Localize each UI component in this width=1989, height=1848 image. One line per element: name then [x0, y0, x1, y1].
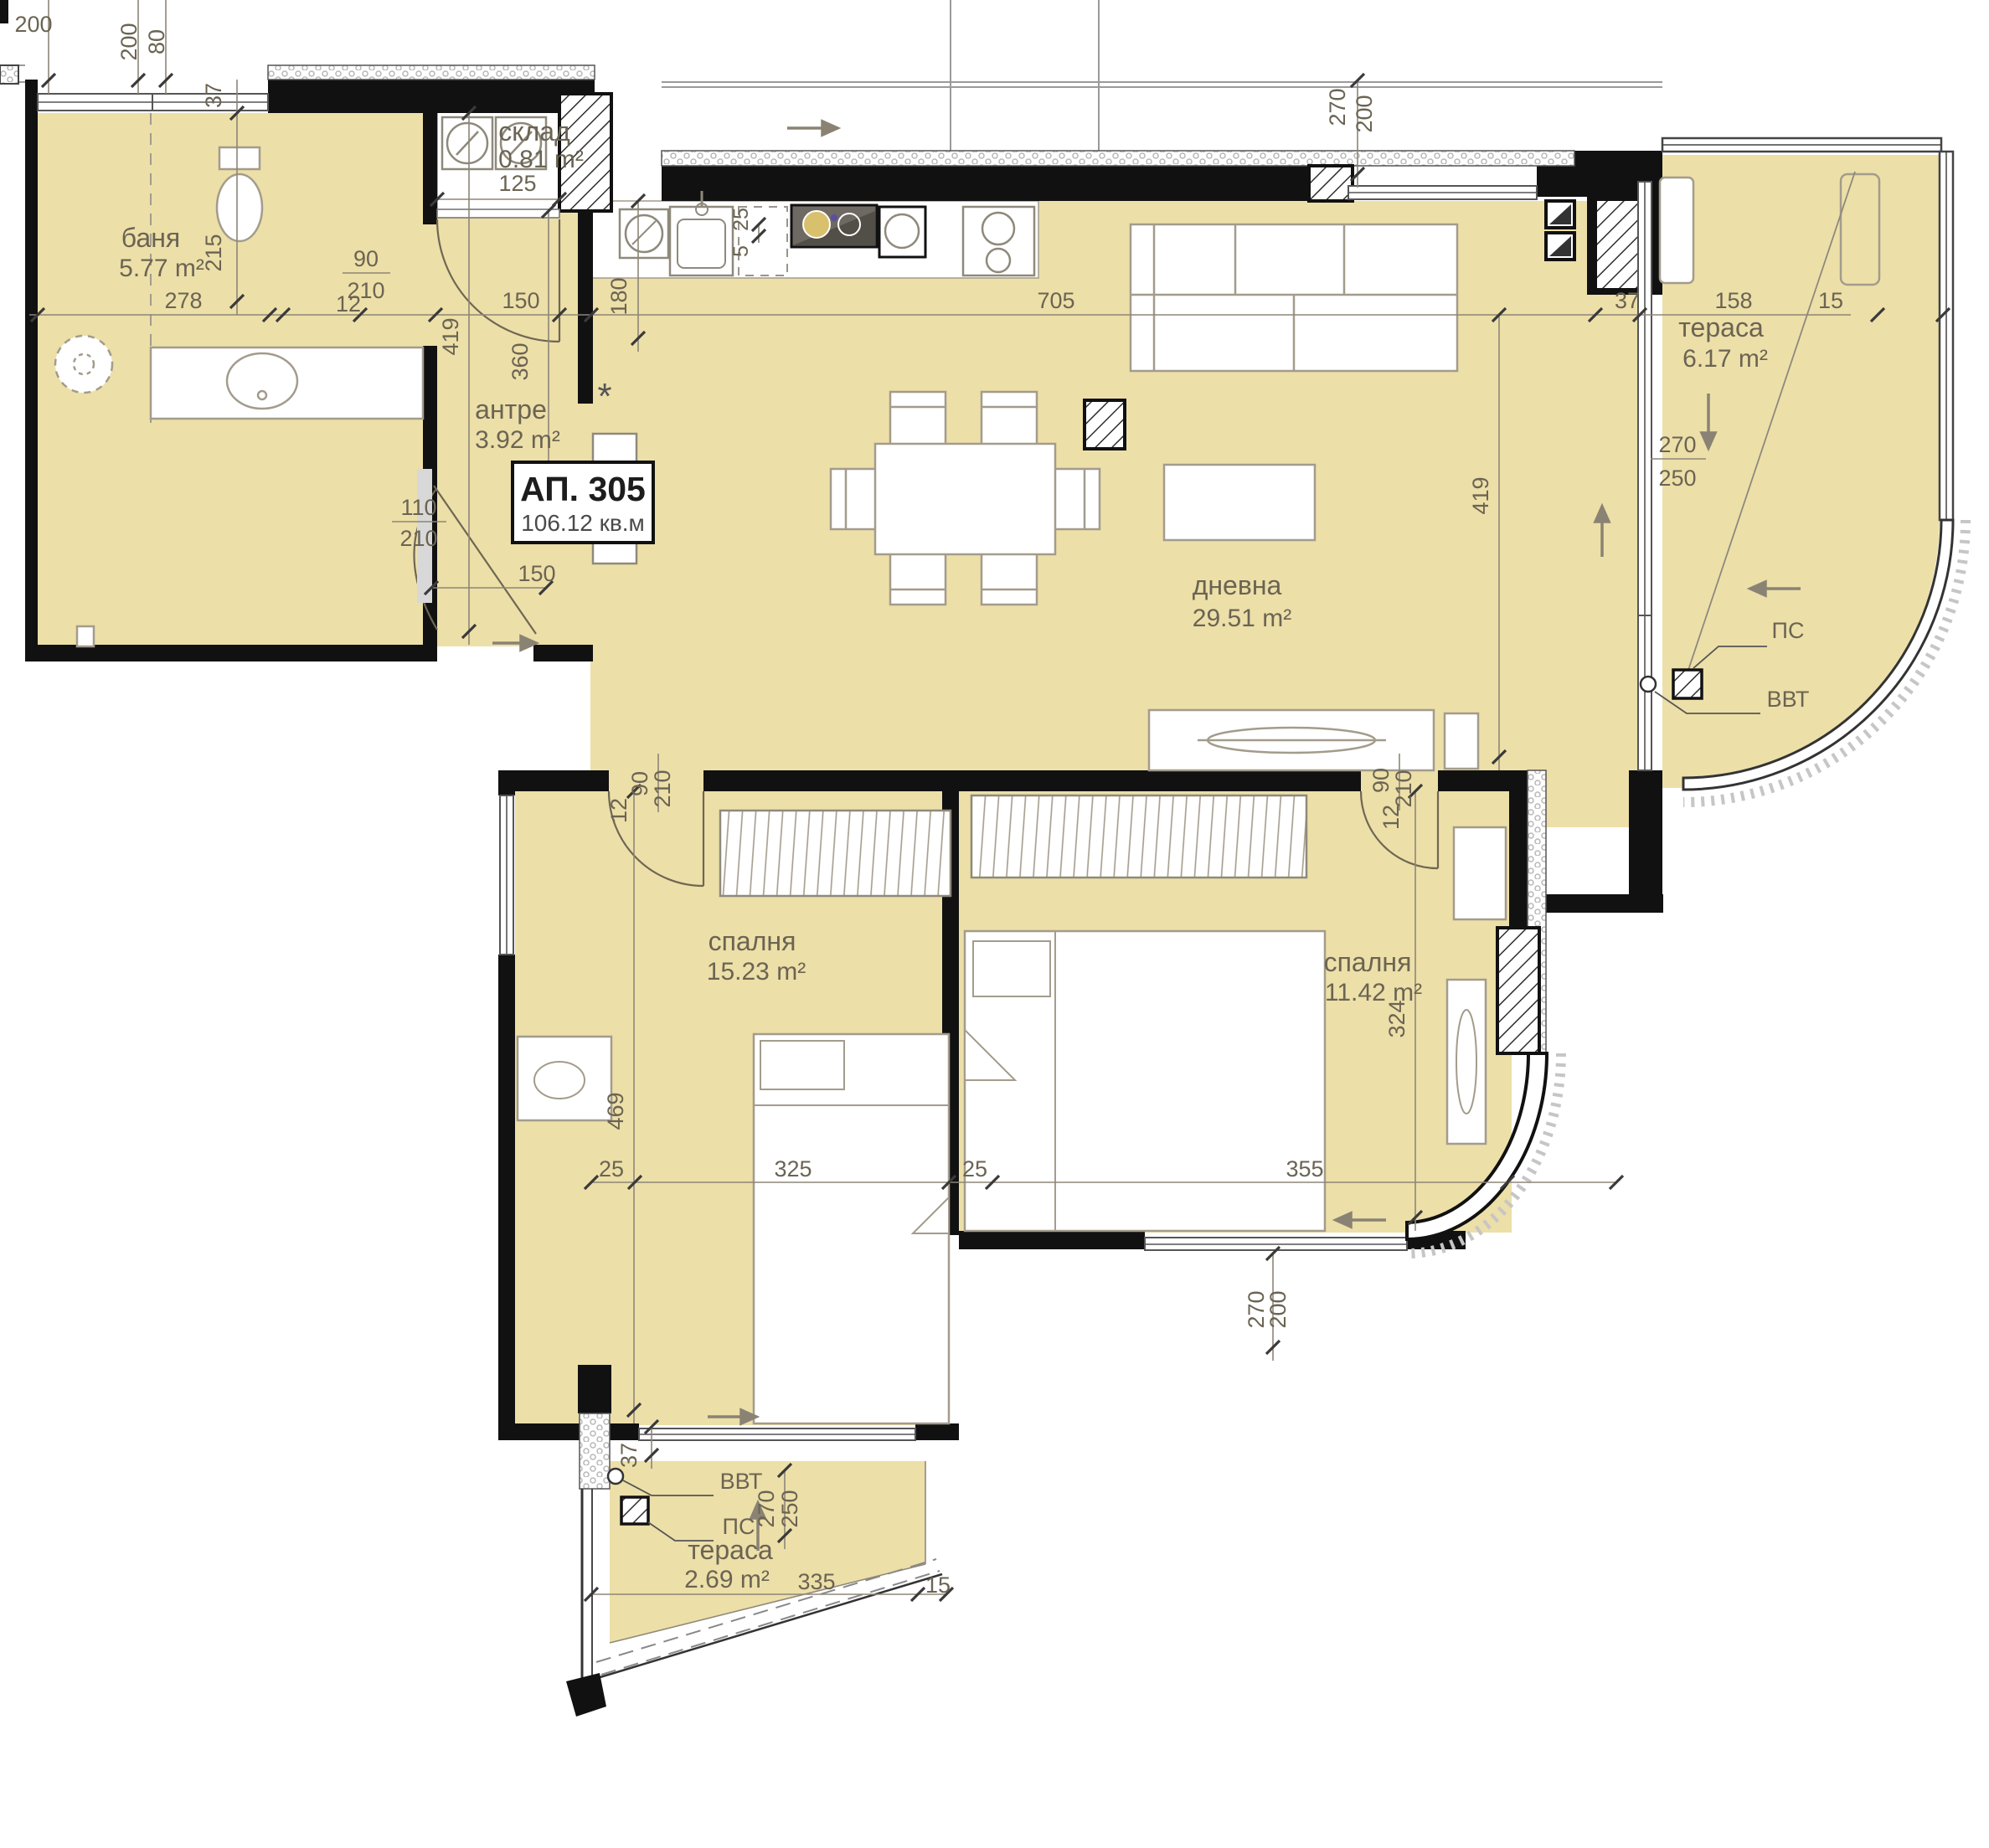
dim-entry-210: 210: [399, 526, 437, 551]
wall-living-se: [1629, 770, 1662, 913]
area-terrace-right: 6.17 m²: [1682, 345, 1768, 373]
wall-bd1-left-top: [498, 770, 515, 795]
ps-box-bottom: [621, 1497, 648, 1524]
dim-top-200b: 200: [1352, 95, 1377, 132]
dim-terr-158: 158: [1714, 288, 1752, 313]
dim-entry-150: 150: [518, 561, 555, 586]
dim-bath-278: 278: [164, 288, 202, 313]
dim-bathdoor-12: 12: [336, 291, 361, 317]
dim-top-200: 200: [14, 12, 52, 37]
area-living: 29.51 m²: [1193, 605, 1291, 632]
vvt-label-bottom: ВВТ: [720, 1469, 763, 1494]
dim-storage-125: 125: [498, 171, 536, 196]
dim-bd2-90: 90: [1368, 768, 1394, 793]
dining-table: [875, 444, 1055, 554]
neighbor-insulation-corner: [0, 65, 18, 84]
toilet-bowl: [217, 174, 262, 241]
bath-drain: [77, 626, 94, 646]
dim-terr-15: 15: [1818, 288, 1843, 313]
dim-kitchen-5: 5: [729, 245, 753, 257]
area-hall: 3.92 m²: [475, 426, 560, 454]
window-bd1-bottom: [639, 1428, 915, 1440]
column-bd2-right: [1497, 928, 1539, 1053]
wall-bd1-bottom-b: [915, 1423, 959, 1440]
insulation-living-top: [662, 151, 1574, 166]
coffee-table: [1164, 465, 1315, 540]
label-storage: склад: [498, 116, 570, 147]
wall-bedrooms-top-c: [1438, 770, 1534, 791]
wall-bd1-bottom-a: [498, 1423, 639, 1440]
dim-botright-200: 200: [1265, 1290, 1291, 1328]
terrace-unit-right: [1841, 174, 1879, 285]
bd1-wardrobe: [720, 811, 951, 896]
dim-kitchen-180: 180: [606, 277, 631, 315]
apartment-area: 106.12 кв.м: [521, 510, 645, 536]
insulation-terrace-bottom: [580, 1413, 610, 1489]
wall-bd2-bottom-a: [959, 1231, 1145, 1249]
wall-entry-right: [533, 645, 593, 661]
dim-top-270: 270: [1325, 88, 1350, 126]
area-terrace-bottom: 2.69 m²: [684, 1566, 770, 1593]
dim-entry-110: 110: [400, 495, 436, 520]
wall-entry-left: [368, 645, 433, 661]
chair: [831, 469, 877, 529]
dim-bd1-12: 12: [606, 798, 631, 823]
bd2-wardrobe: [971, 795, 1306, 878]
window-living-topright: [1348, 186, 1537, 199]
dim-bd2-12: 12: [1378, 805, 1404, 830]
window-bd1-left: [500, 795, 513, 955]
wall-bedrooms-top-b: [703, 770, 1361, 791]
dim-bot-25-left: 25: [599, 1156, 624, 1181]
bd1-dresser: [518, 1037, 611, 1120]
floor-plan-page: АП. 305 106.12 кв.м баня 5.77 m² склад 0…: [0, 0, 1989, 1848]
bd2-vanity: [1447, 980, 1486, 1144]
living-side-unit: [1445, 713, 1478, 769]
label-living: дневна: [1193, 570, 1282, 600]
dim-bd1-210: 210: [650, 770, 675, 807]
vvt-point-right: [1641, 677, 1656, 692]
washbasin-drain: [258, 391, 266, 399]
dim-bd2-324: 324: [1384, 1000, 1409, 1037]
asterisk-mark: *: [597, 376, 611, 417]
dim-top-v80: 80: [144, 29, 169, 54]
wall-step-connector: [1539, 894, 1663, 913]
dim-kitchen-25: 25: [729, 208, 753, 231]
chair: [982, 392, 1037, 447]
window-bath-top: [38, 94, 268, 111]
apartment-label-box: АП. 305 106.12 кв.м: [513, 462, 653, 543]
apartment-number: АП. 305: [520, 470, 646, 508]
sofa: [1131, 224, 1457, 371]
dim-bathdoor-90: 90: [353, 246, 379, 271]
toilet-tank: [219, 147, 260, 169]
dim-bd1-90: 90: [627, 771, 652, 796]
label-bedroom-left: спалня: [709, 926, 796, 956]
label-terrace-bottom: тераса: [688, 1535, 773, 1565]
wall-living-top: [662, 166, 1348, 201]
column-living-topwall: [1309, 166, 1353, 201]
label-hall: антре: [475, 394, 547, 425]
wall-hall-stub: [578, 211, 593, 404]
label-terrace-right: тераса: [1678, 312, 1764, 342]
dim-hall-360: 360: [508, 342, 533, 380]
vvt-label-right: ВВТ: [1767, 687, 1810, 712]
floor-plan-drawing: АП. 305 106.12 кв.м баня 5.77 m² склад 0…: [0, 0, 1989, 1848]
ps-label-right: ПС: [1772, 618, 1805, 643]
label-bedroom-right: спалня: [1324, 947, 1412, 977]
wall-terrace-bottom-left: [578, 1365, 611, 1413]
ps-label-bottom: ПС: [723, 1514, 755, 1539]
window-bd2-bottom: [1145, 1238, 1407, 1250]
tv-console: [1149, 710, 1434, 770]
dim-bt-37: 37: [616, 1443, 642, 1468]
wall-bath-right-upper: [423, 113, 437, 224]
chair: [890, 553, 946, 605]
dim-living-419-right: 419: [1468, 476, 1493, 514]
terrace-unit-left: [1660, 178, 1693, 283]
dim-living-705: 705: [1037, 288, 1074, 313]
area-storage: 0.81 m²: [498, 146, 584, 173]
chair: [982, 553, 1037, 605]
neighbor-wall-stub: [0, 0, 8, 23]
dim-living-419-left: 419: [438, 317, 463, 355]
dim-bt-270: 270: [754, 1490, 779, 1527]
column-living-mid: [1085, 400, 1125, 449]
label-bathroom: баня: [121, 223, 180, 253]
dim-bath-215: 215: [201, 234, 226, 271]
dim-terr-250: 250: [1658, 466, 1696, 491]
area-bedroom-left: 15.23 m²: [707, 958, 806, 986]
bd2-shelf: [1454, 827, 1506, 919]
bd2-pillow: [973, 941, 1050, 996]
dim-top-37: 37: [201, 83, 226, 108]
dim-bd2-210: 210: [1391, 770, 1416, 807]
dim-top-v200: 200: [116, 23, 142, 60]
chair: [1054, 469, 1100, 529]
window-storage-sill: [437, 209, 559, 218]
ps-box-right: [1673, 670, 1702, 698]
chair: [890, 392, 946, 447]
wall-window-cap-top: [1635, 155, 1660, 182]
dim-bd1-469: 469: [603, 1092, 628, 1130]
dim-terr-270: 270: [1658, 432, 1696, 457]
insulation-top-left: [268, 65, 595, 80]
bd1-pillow: [760, 1041, 844, 1089]
dim-bot-325: 325: [774, 1156, 812, 1181]
dim-bt-250: 250: [777, 1490, 802, 1527]
wall-top-storage: [268, 80, 595, 113]
dim-bt-335: 335: [797, 1569, 835, 1594]
vvt-point-bottom: [608, 1469, 623, 1484]
dim-terr-37: 37: [1615, 288, 1640, 313]
wall-bath-left: [25, 80, 38, 661]
dim-bot-355: 355: [1286, 1156, 1323, 1181]
kitchen-stove: [963, 207, 1034, 275]
dim-bt-15: 15: [925, 1573, 951, 1598]
dim-halldoor-150: 150: [502, 288, 539, 313]
dim-bot-25-right: 25: [962, 1156, 987, 1181]
wall-bd1-left-lower: [498, 955, 515, 1428]
shower-inner: [74, 354, 94, 374]
area-bathroom: 5.77 m²: [119, 255, 204, 282]
